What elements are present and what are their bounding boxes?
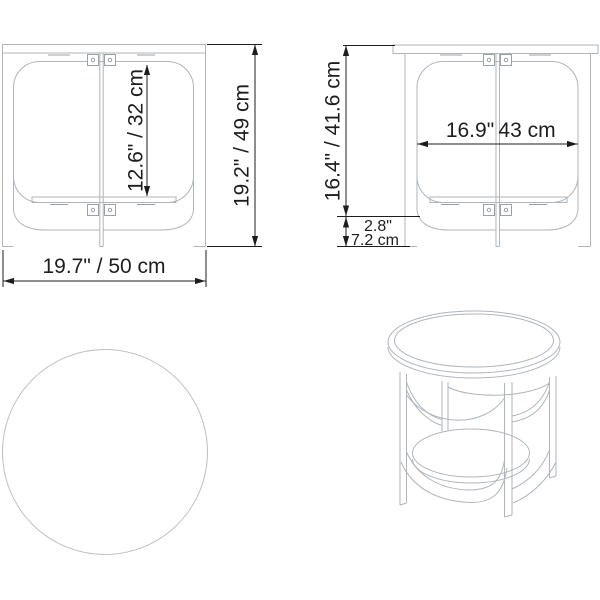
leg-back-right xyxy=(550,376,557,478)
side-opening-width-cm-label: 43 cm xyxy=(498,119,555,142)
top-view xyxy=(3,350,208,555)
perspective-aprons xyxy=(407,382,550,426)
side-view: 16.4" / 41.6 cm 16.9" 43 cm 2.8" 7.2 cm xyxy=(322,45,599,249)
dimension-drawing-page: 12.6" / 32 cm 19.2" / 49 cm 19.7" / 50 c… xyxy=(0,0,600,600)
leg-back-left xyxy=(442,381,448,431)
apron-right xyxy=(512,382,550,422)
front-cam-fittings xyxy=(88,55,116,216)
side-opening-width-inches-label: 16.9" xyxy=(446,119,494,142)
side-dimensions: 16.4" / 41.6 cm 16.9" 43 cm 2.8" 7.2 cm xyxy=(322,46,579,250)
cam-hole xyxy=(487,208,490,211)
base-arch-left-top-edge xyxy=(407,452,505,490)
perspective-view xyxy=(388,311,560,517)
perspective-legs xyxy=(400,372,556,517)
leg-front-right xyxy=(505,382,513,517)
arrow-down-icon xyxy=(343,206,349,217)
side-base-height-cm-label: 7.2 cm xyxy=(351,232,399,249)
arrow-left-icon xyxy=(418,141,429,147)
arrow-right-icon xyxy=(195,278,206,284)
cam-hole xyxy=(108,208,111,211)
cam-hole xyxy=(504,208,507,211)
front-legs xyxy=(3,53,206,247)
front-shelf xyxy=(32,197,176,203)
side-top-section-extlines xyxy=(337,46,420,217)
front-view: 12.6" / 32 cm 19.2" / 49 cm 19.7" / 50 c… xyxy=(3,45,263,288)
arrow-up-icon xyxy=(252,45,258,56)
cam-hole xyxy=(108,58,111,61)
arrow-down-icon xyxy=(343,236,349,247)
side-legs xyxy=(405,54,591,247)
cam-hole xyxy=(91,58,94,61)
side-tabletop xyxy=(393,45,598,54)
side-top-section-label: 16.4" / 41.6 cm xyxy=(322,61,345,202)
tabletop-outer-edge xyxy=(388,311,560,373)
perspective-tabletop xyxy=(388,311,560,378)
leg-front-left xyxy=(400,372,407,505)
front-overall-height-label: 19.2" / 49 cm xyxy=(231,84,254,207)
apron-left xyxy=(407,382,443,426)
cam-hole xyxy=(504,58,507,61)
tabletop-circle xyxy=(3,350,208,555)
front-opening-height-label: 12.6" / 32 cm xyxy=(125,69,148,192)
tabletop-inner-edge xyxy=(395,314,554,367)
arrow-left-icon xyxy=(4,278,15,284)
front-view-outline xyxy=(3,45,206,247)
arrow-down-icon xyxy=(252,236,258,247)
base-arch-right-top-edge xyxy=(512,450,550,489)
drawing-canvas: 12.6" / 32 cm 19.2" / 49 cm 19.7" / 50 c… xyxy=(0,0,600,600)
front-tabletop xyxy=(3,45,206,54)
side-shelf xyxy=(430,197,567,203)
cam-hole xyxy=(487,58,490,61)
side-base-arches xyxy=(417,210,578,230)
apron-back xyxy=(448,383,550,395)
arrow-up-icon xyxy=(343,46,349,57)
arrow-right-icon xyxy=(567,141,578,147)
arrow-up-icon xyxy=(343,217,349,228)
front-overall-width-label: 19.7" / 50 cm xyxy=(42,255,165,278)
front-dimensions: 12.6" / 32 cm 19.2" / 49 cm 19.7" / 50 c… xyxy=(3,45,262,288)
cam-hole xyxy=(91,208,94,211)
